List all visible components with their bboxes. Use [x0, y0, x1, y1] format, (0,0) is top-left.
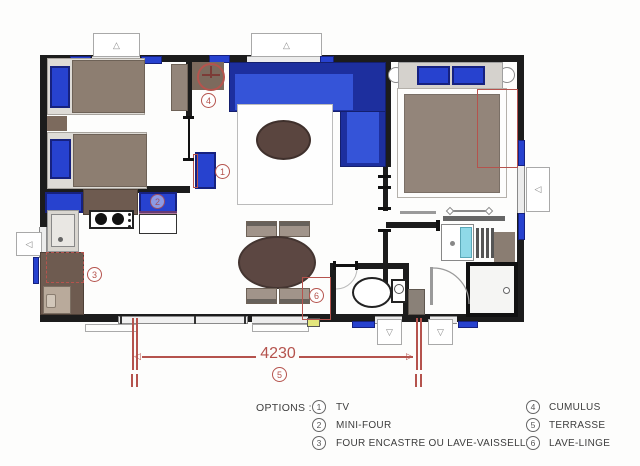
twin-bed-2-pillow	[50, 139, 71, 179]
sliding-track	[400, 211, 436, 214]
legend-title: OPTIONS :	[256, 402, 312, 414]
dim-tick	[136, 374, 138, 387]
legend-label: TV	[336, 402, 349, 413]
door-frame-cap	[436, 220, 440, 231]
faucet-dot	[58, 237, 63, 242]
cooktop-knob	[128, 219, 131, 222]
dining-chair	[279, 221, 310, 237]
door-frame-cap	[333, 261, 336, 270]
wall-hallway-lower	[383, 231, 388, 286]
window-bottom-right-2-frame: ▽	[428, 319, 453, 345]
towel-rail	[481, 228, 484, 258]
door-frame-cap	[378, 229, 391, 232]
dim-extension-line	[420, 318, 422, 370]
shower-drain	[503, 287, 510, 294]
coffee-table	[256, 120, 311, 160]
door-frame-cap	[378, 186, 391, 189]
marker-mini-four: 2	[150, 194, 165, 209]
nightstand	[47, 116, 67, 131]
terrace-step	[85, 324, 138, 332]
door-frame-cap	[378, 207, 391, 210]
burner	[95, 213, 107, 225]
terrace-step	[252, 324, 309, 332]
window-marker-icon: ◁	[535, 185, 542, 194]
dim-line	[142, 356, 256, 358]
window-top-center-frame: △	[251, 33, 322, 57]
window-marker-icon: ◁	[26, 240, 33, 249]
marker-dishwasher: 3	[87, 267, 102, 282]
sliding-door	[118, 316, 248, 324]
legend-circle: 1	[312, 400, 326, 414]
sliding-door-symbol	[450, 210, 488, 212]
window-marker-icon: △	[283, 41, 290, 50]
wall-hallway-upper	[383, 167, 388, 211]
toilet-bowl	[352, 277, 392, 308]
shower	[466, 262, 518, 317]
mirror	[460, 227, 472, 258]
sliding-door-end-icon	[485, 207, 493, 215]
legend-label: CUMULUS	[549, 402, 601, 413]
toilet-button	[394, 284, 404, 294]
cooktop-knob	[128, 213, 131, 216]
window-bottom-center	[252, 316, 308, 324]
fridge-detail	[46, 294, 56, 308]
towel-rail	[476, 228, 479, 258]
legend-label: LAVE-LINGE	[549, 438, 610, 449]
marker-cumulus: 4	[201, 93, 216, 108]
headboard	[398, 62, 503, 89]
door-frame-cap	[183, 158, 194, 161]
twin-bed-1-blanket	[72, 60, 145, 113]
towel-rail	[486, 228, 489, 258]
sliding-door-mullion	[244, 316, 246, 324]
door-frame-cap	[183, 116, 194, 119]
legend-label: MINI-FOUR	[336, 420, 391, 431]
door-wc	[336, 264, 357, 267]
cumulus-icon-cross	[210, 66, 212, 78]
curtain-strip	[518, 140, 525, 166]
floor-plan: △ △ ◁ ◁ ▽ ▽ 4 1	[0, 0, 640, 466]
dim-tick	[415, 374, 417, 387]
door-frame-cap	[378, 175, 391, 178]
dim-line	[299, 356, 413, 358]
curtain-strip	[458, 321, 478, 328]
sliding-door-end-icon	[446, 207, 454, 215]
legend-circle: 4	[526, 400, 540, 414]
legend-circle: 3	[312, 436, 326, 450]
dim-extension-line	[132, 318, 134, 370]
legend-label: FOUR ENCASTRE OU LAVE-VAISSELLE	[336, 438, 533, 449]
window-marker-icon: ▽	[386, 328, 393, 337]
kitchen-cabinet-white	[139, 214, 177, 234]
dining-chair	[246, 288, 277, 304]
door-frame-cap	[355, 261, 358, 270]
wardrobe	[171, 64, 188, 111]
shelf-bar	[443, 216, 505, 221]
legend-label: TERRASSE	[549, 420, 605, 431]
dishwasher-option-zone	[46, 252, 84, 283]
dimension-value: 4230	[256, 345, 300, 363]
sink-basin	[51, 214, 75, 247]
dim-arrow-left-icon: ◁	[134, 352, 141, 361]
window-top-left-frame: △	[93, 33, 140, 57]
dim-extension-line	[416, 318, 418, 370]
marker-tv: 1	[215, 164, 230, 179]
window-left-frame: ◁	[16, 232, 42, 256]
option-zone-outline	[477, 89, 518, 168]
door-bedroom1	[188, 119, 190, 160]
wall-bathroom-top	[386, 222, 440, 228]
curtain-strip	[352, 321, 375, 328]
dim-extension-line	[136, 318, 138, 370]
sliding-door-mullion	[194, 316, 196, 324]
window-marker-icon: △	[113, 41, 120, 50]
burner	[112, 213, 124, 225]
dim-arrow-right-icon: ▷	[406, 352, 413, 361]
dim-tick	[420, 374, 422, 387]
faucet-dot	[450, 241, 455, 246]
window-bottom-right-1-frame: ▽	[377, 319, 402, 345]
twin-bed-2-blanket	[73, 134, 147, 187]
window-right	[517, 166, 525, 213]
pillow	[452, 66, 485, 85]
cooktop-knob	[128, 225, 131, 228]
legend-circle: 2	[312, 418, 326, 432]
dining-chair	[246, 221, 277, 237]
bathroom-door-leaf	[430, 267, 433, 305]
twin-bed-1-pillow	[50, 66, 70, 108]
marker-terrasse: 5	[272, 367, 287, 382]
tv-unit	[195, 152, 216, 189]
curtain-strip	[518, 213, 525, 240]
pillow	[417, 66, 450, 85]
sliding-door-mullion	[120, 316, 122, 324]
dim-tick	[131, 374, 133, 387]
marker-lave-linge: 6	[309, 288, 324, 303]
curtain-strip	[33, 257, 39, 284]
window-right-frame: ◁	[526, 167, 550, 212]
wall-wc-top	[356, 263, 408, 269]
bathroom-cabinet	[494, 232, 515, 262]
legend-circle: 6	[526, 436, 540, 450]
window-marker-icon: ▽	[437, 328, 444, 337]
legend-circle: 5	[526, 418, 540, 432]
wc-shelf	[408, 289, 425, 315]
